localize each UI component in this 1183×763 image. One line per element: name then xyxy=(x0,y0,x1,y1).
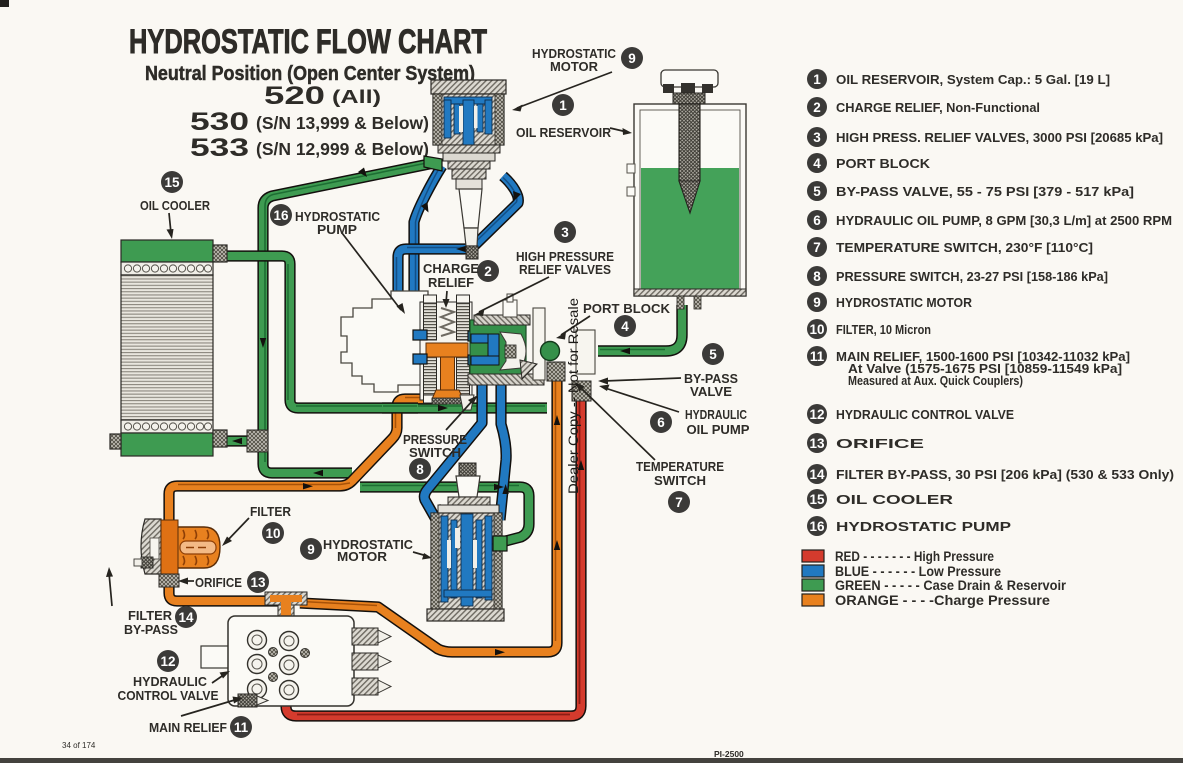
svg-text:SWITCH: SWITCH xyxy=(409,445,461,460)
svg-text:OIL COOLER: OIL COOLER xyxy=(836,492,954,507)
svg-text:OIL COOLER: OIL COOLER xyxy=(140,198,211,213)
svg-text:10: 10 xyxy=(809,322,824,337)
svg-text:MOTOR: MOTOR xyxy=(550,59,599,74)
svg-text:SWITCH: SWITCH xyxy=(654,473,706,488)
svg-text:MAIN RELIEF: MAIN RELIEF xyxy=(149,720,227,735)
svg-text:HYDRAULIC OIL PUMP, 8 GPM [3: HYDRAULIC OIL PUMP, 8 GPM [30,3 L/m] at … xyxy=(836,213,1172,228)
svg-text:8: 8 xyxy=(813,269,821,284)
svg-text:7: 7 xyxy=(813,240,821,255)
svg-text:PRESSURE SWITCH, 23-27 PSI [1: PRESSURE SWITCH, 23-27 PSI [158-186 kPa] xyxy=(836,269,1108,284)
svg-text:PORT BLOCK: PORT BLOCK xyxy=(583,301,671,316)
svg-text:16: 16 xyxy=(809,519,825,534)
svg-text:520: 520 xyxy=(264,82,325,110)
svg-text:16: 16 xyxy=(273,208,289,223)
svg-text:ORIFICE: ORIFICE xyxy=(195,575,242,590)
svg-text:FILTER, 10 Micron: FILTER, 10 Micron xyxy=(836,322,931,337)
svg-text:HYDROSTATIC PUMP: HYDROSTATIC PUMP xyxy=(836,519,1011,534)
svg-text:HIGH PRESS. RELIEF VALVES,: HIGH PRESS. RELIEF VALVES, 3000 PSI [206… xyxy=(836,130,1163,145)
svg-text:6: 6 xyxy=(813,213,821,228)
svg-text:Measured at Aux. Quick Coupler: Measured at Aux. Quick Couplers) xyxy=(848,373,1023,388)
svg-text:12: 12 xyxy=(160,654,175,669)
svg-text:CHARGE: CHARGE xyxy=(423,261,479,276)
svg-text:MOTOR: MOTOR xyxy=(337,549,388,564)
svg-text:RELIEF: RELIEF xyxy=(428,275,474,290)
svg-text:TEMPERATURE: TEMPERATURE xyxy=(636,459,724,474)
svg-text:ORIFICE: ORIFICE xyxy=(836,436,925,451)
svg-text:5: 5 xyxy=(709,347,717,362)
svg-text:HYDRAULIC CONTROL VALVE: HYDRAULIC CONTROL VALVE xyxy=(836,407,1014,422)
svg-text:14: 14 xyxy=(178,610,194,625)
svg-text:FILTER: FILTER xyxy=(128,608,173,623)
svg-text:14: 14 xyxy=(809,467,825,482)
svg-text:PORT BLOCK: PORT BLOCK xyxy=(836,156,931,171)
svg-text:34 of 174: 34 of 174 xyxy=(62,741,96,750)
svg-text:9: 9 xyxy=(307,542,315,557)
svg-text:CONTROL VALVE: CONTROL VALVE xyxy=(118,688,219,703)
svg-text:15: 15 xyxy=(809,492,825,507)
svg-text:5: 5 xyxy=(813,184,821,199)
svg-text:1: 1 xyxy=(559,98,567,113)
svg-text:533: 533 xyxy=(190,134,249,162)
svg-text:2: 2 xyxy=(813,100,821,115)
svg-text:CHARGE RELIEF, Non-Functional: CHARGE RELIEF, Non-Functional xyxy=(836,100,1040,115)
svg-text:FILTER: FILTER xyxy=(250,504,292,519)
svg-text:GREEN - - - - - Case Drain & R: GREEN - - - - - Case Drain & Reservoir xyxy=(835,578,1067,593)
svg-text:3: 3 xyxy=(561,225,569,240)
svg-text:3: 3 xyxy=(813,130,821,145)
svg-text:TEMPERATURE SWITCH, 230°F [11: TEMPERATURE SWITCH, 230°F [110°C] xyxy=(836,240,1093,255)
svg-text:RELIEF VALVES: RELIEF VALVES xyxy=(519,262,611,277)
svg-text:BY-PASS: BY-PASS xyxy=(124,622,178,637)
svg-text:OIL RESERVOIR: OIL RESERVOIR xyxy=(516,125,612,140)
svg-text:BY-PASS VALVE, 55 - 75 PSI [3: BY-PASS VALVE, 55 - 75 PSI [379 - 517 kP… xyxy=(836,184,1134,199)
svg-text:9: 9 xyxy=(628,51,636,66)
svg-text:BLUE - - - - - - Low Pressure: BLUE - - - - - - Low Pressure xyxy=(835,564,1001,579)
svg-text:2: 2 xyxy=(484,264,492,279)
svg-text:11: 11 xyxy=(234,720,249,735)
svg-text:HYDRAULIC: HYDRAULIC xyxy=(685,407,747,422)
svg-text:9: 9 xyxy=(813,295,821,310)
svg-text:10: 10 xyxy=(265,526,280,541)
svg-text:12: 12 xyxy=(809,407,824,422)
svg-text:Dealer Copy -- Not for Resale: Dealer Copy -- Not for Resale xyxy=(566,298,581,494)
svg-text:HYDROSTATIC FLOW CHART: HYDROSTATIC FLOW CHART xyxy=(129,23,487,61)
svg-text:530: 530 xyxy=(190,108,249,136)
svg-text:13: 13 xyxy=(809,436,825,451)
svg-text:OIL RESERVOIR, System Cap.:: OIL RESERVOIR, System Cap.: 5 Gal. [19 L… xyxy=(836,72,1110,87)
svg-text:OIL PUMP: OIL PUMP xyxy=(687,422,750,437)
svg-text:8: 8 xyxy=(416,462,424,477)
svg-text:1: 1 xyxy=(813,72,821,87)
svg-text:11: 11 xyxy=(810,349,825,364)
svg-text:PUMP: PUMP xyxy=(317,222,357,237)
svg-text:HYDRAULIC: HYDRAULIC xyxy=(133,674,208,689)
svg-text:FILTER BY-PASS, 30 PSI [206 k: FILTER BY-PASS, 30 PSI [206 kPa] (530 & … xyxy=(836,467,1174,482)
svg-text:4: 4 xyxy=(621,319,629,334)
svg-text:VALVE: VALVE xyxy=(690,384,732,399)
svg-text:6: 6 xyxy=(657,415,665,430)
svg-text:7: 7 xyxy=(675,495,683,510)
svg-text:PI-2500: PI-2500 xyxy=(714,749,744,759)
svg-text:(All): (All) xyxy=(332,87,381,107)
svg-text:4: 4 xyxy=(813,156,821,171)
svg-text:(S/N 13,999 & Below): (S/N 13,999 & Below) xyxy=(256,113,429,133)
svg-text:HYDROSTATIC MOTOR: HYDROSTATIC MOTOR xyxy=(836,295,973,310)
svg-text:15: 15 xyxy=(164,175,180,190)
svg-text:RED - - - - - - - High Pressur: RED - - - - - - - High Pressure xyxy=(835,549,994,564)
svg-text:ORANGE - - - -Charge Pressure: ORANGE - - - -Charge Pressure xyxy=(835,593,1051,608)
svg-text:13: 13 xyxy=(250,575,266,590)
svg-text:(S/N 12,999 & Below): (S/N 12,999 & Below) xyxy=(256,139,429,159)
